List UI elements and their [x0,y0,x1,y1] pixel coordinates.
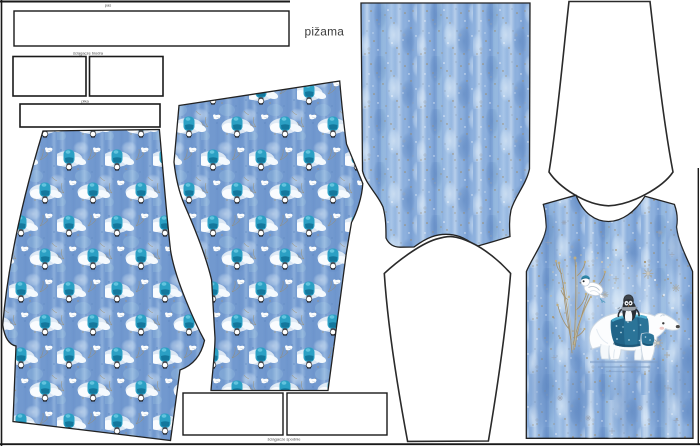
svg-text:ściągacze biodra: ściągacze biodra [73,51,104,56]
svg-text:pas: pas [105,3,111,8]
svg-text:pika: pika [81,99,89,104]
svg-text:ściągacze spodnie: ściągacze spodnie [268,437,302,442]
svg-text:pižama: pižama [305,25,345,39]
